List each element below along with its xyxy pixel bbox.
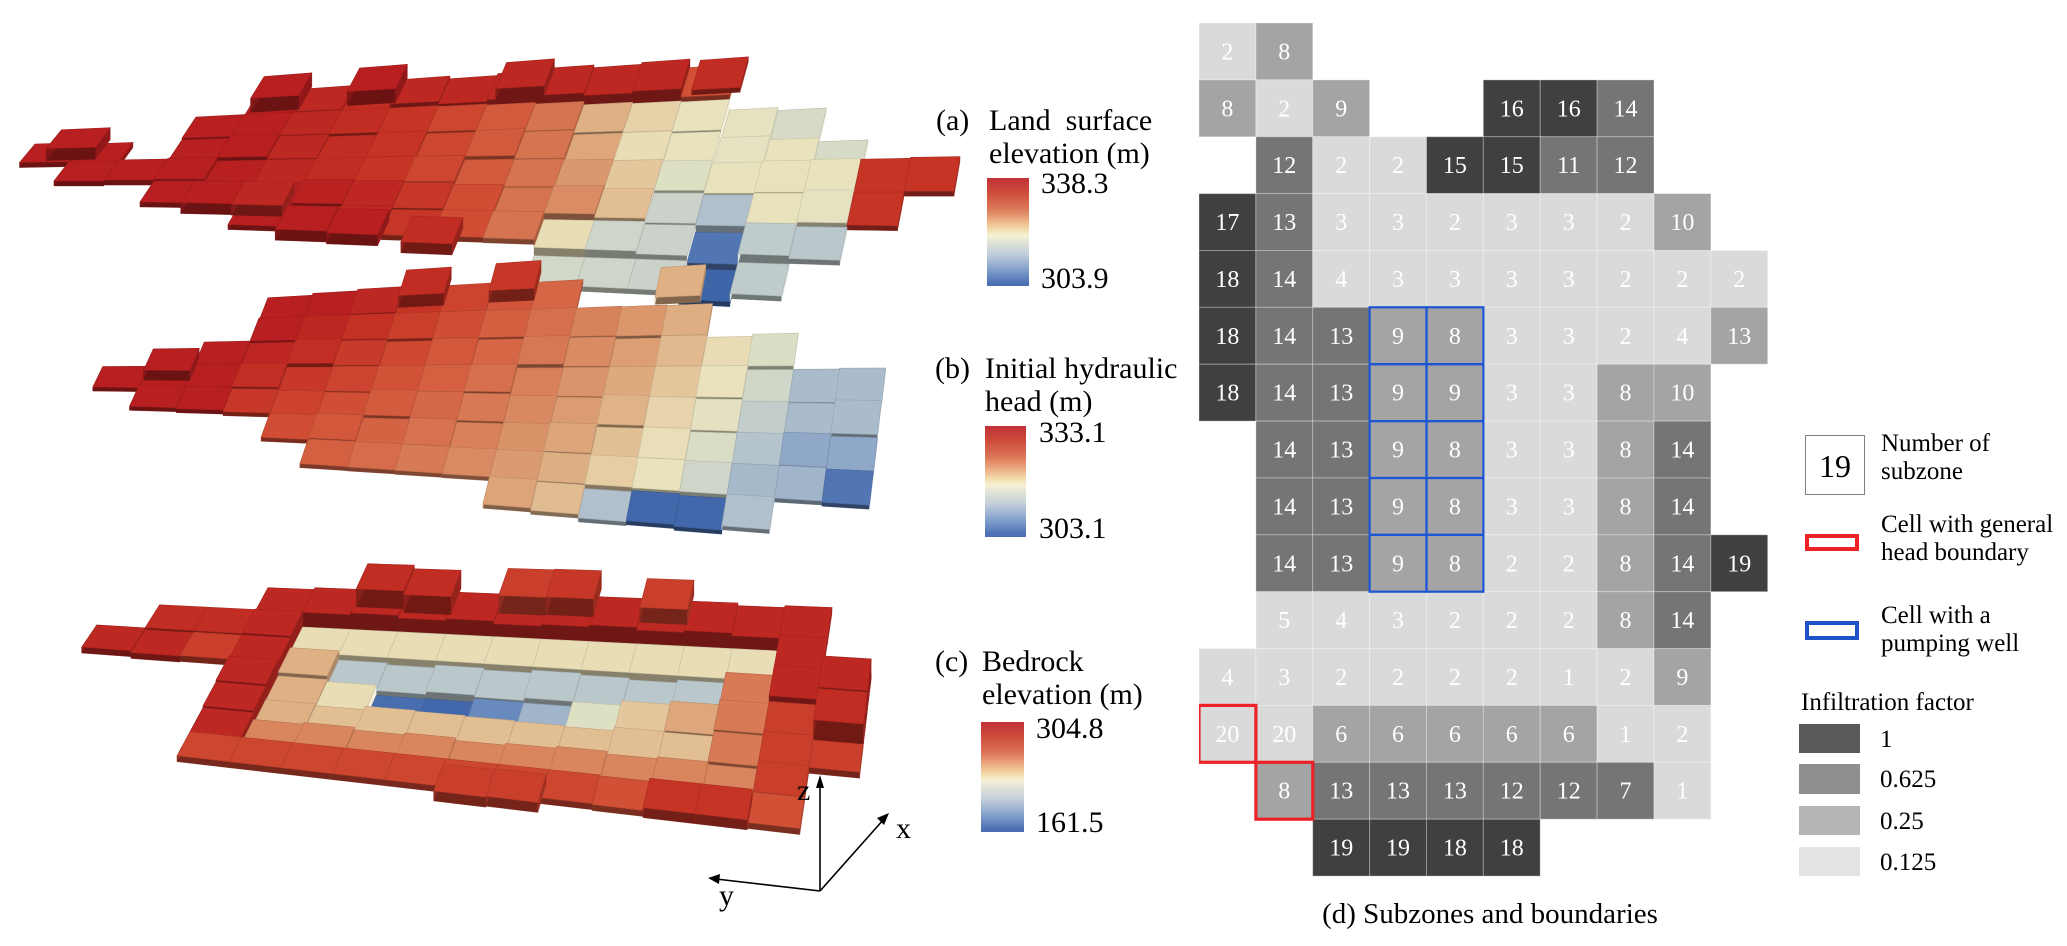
svg-text:13: 13 [1727,324,1751,350]
svg-text:2: 2 [1676,267,1688,293]
svg-text:13: 13 [1329,438,1353,464]
svg-text:3: 3 [1392,608,1404,634]
svg-text:2: 2 [1506,608,1518,634]
svg-text:2: 2 [1676,722,1688,748]
svg-text:3: 3 [1506,494,1518,520]
svg-text:y: y [719,879,734,912]
svg-text:2: 2 [1620,665,1632,691]
svg-text:10: 10 [1670,210,1694,236]
svg-text:3: 3 [1506,210,1518,236]
svg-text:9: 9 [1392,324,1404,350]
svg-text:3: 3 [1278,665,1290,691]
svg-text:12: 12 [1272,153,1296,179]
svg-text:18: 18 [1500,836,1524,862]
svg-text:14: 14 [1272,381,1296,407]
svg-text:5: 5 [1278,608,1290,634]
svg-text:13: 13 [1329,551,1353,577]
svg-text:4: 4 [1335,267,1347,293]
svg-text:3: 3 [1392,210,1404,236]
svg-text:3: 3 [1563,210,1575,236]
svg-text:2: 2 [1449,608,1461,634]
svg-text:2: 2 [1506,551,1518,577]
svg-text:9: 9 [1449,381,1461,407]
svg-text:19: 19 [1386,836,1410,862]
svg-text:2: 2 [1392,153,1404,179]
svg-text:8: 8 [1449,438,1461,464]
svg-text:2: 2 [1392,665,1404,691]
svg-text:17: 17 [1215,210,1239,236]
svg-text:16: 16 [1557,96,1581,122]
svg-text:8: 8 [1620,608,1632,634]
svg-text:6: 6 [1506,722,1518,748]
svg-text:6: 6 [1563,722,1575,748]
svg-text:19: 19 [1329,836,1353,862]
svg-text:6: 6 [1392,722,1404,748]
svg-text:14: 14 [1272,438,1296,464]
svg-text:2: 2 [1506,665,1518,691]
svg-text:2: 2 [1620,324,1632,350]
svg-text:13: 13 [1329,779,1353,805]
svg-text:19: 19 [1727,551,1751,577]
svg-text:14: 14 [1272,551,1296,577]
svg-text:14: 14 [1670,494,1694,520]
svg-text:2: 2 [1620,210,1632,236]
svg-text:13: 13 [1329,324,1353,350]
svg-text:14: 14 [1272,267,1296,293]
svg-text:3: 3 [1392,267,1404,293]
svg-text:8: 8 [1620,551,1632,577]
svg-text:2: 2 [1620,267,1632,293]
svg-text:8: 8 [1449,324,1461,350]
svg-text:3: 3 [1563,381,1575,407]
svg-text:3: 3 [1563,324,1575,350]
svg-text:8: 8 [1620,381,1632,407]
svg-text:6: 6 [1449,722,1461,748]
svg-text:8: 8 [1449,494,1461,520]
svg-text:8: 8 [1449,551,1461,577]
svg-text:9: 9 [1392,551,1404,577]
svg-text:9: 9 [1392,438,1404,464]
svg-text:2: 2 [1563,608,1575,634]
svg-text:2: 2 [1449,665,1461,691]
svg-text:9: 9 [1392,381,1404,407]
svg-text:2: 2 [1335,153,1347,179]
svg-text:2: 2 [1563,551,1575,577]
svg-text:x: x [896,812,911,845]
svg-text:8: 8 [1620,438,1632,464]
svg-text:18: 18 [1215,324,1239,350]
svg-text:3: 3 [1563,267,1575,293]
svg-text:2: 2 [1278,96,1290,122]
svg-text:18: 18 [1215,267,1239,293]
svg-text:10: 10 [1670,381,1694,407]
svg-text:11: 11 [1557,153,1580,179]
svg-text:6: 6 [1335,722,1347,748]
svg-text:13: 13 [1443,779,1467,805]
svg-text:18: 18 [1443,836,1467,862]
svg-text:16: 16 [1500,96,1524,122]
svg-text:3: 3 [1563,438,1575,464]
svg-text:12: 12 [1614,153,1638,179]
svg-text:13: 13 [1329,381,1353,407]
svg-text:15: 15 [1443,153,1467,179]
svg-text:13: 13 [1272,210,1296,236]
svg-text:13: 13 [1386,779,1410,805]
svg-text:14: 14 [1670,608,1694,634]
svg-text:14: 14 [1614,96,1638,122]
svg-text:3: 3 [1506,438,1518,464]
svg-text:8: 8 [1221,96,1233,122]
svg-text:13: 13 [1329,494,1353,520]
svg-text:14: 14 [1670,438,1694,464]
svg-text:14: 14 [1670,551,1694,577]
svg-text:14: 14 [1272,494,1296,520]
svg-text:15: 15 [1500,153,1524,179]
svg-text:3: 3 [1449,267,1461,293]
svg-text:3: 3 [1506,324,1518,350]
svg-text:12: 12 [1500,779,1524,805]
svg-text:3: 3 [1563,494,1575,520]
svg-text:8: 8 [1278,39,1290,65]
svg-text:1: 1 [1563,665,1575,691]
svg-text:14: 14 [1272,324,1296,350]
svg-text:4: 4 [1221,665,1233,691]
svg-text:4: 4 [1335,608,1347,634]
svg-text:3: 3 [1335,210,1347,236]
svg-text:2: 2 [1221,39,1233,65]
svg-text:2: 2 [1449,210,1461,236]
svg-text:12: 12 [1557,779,1581,805]
svg-text:4: 4 [1676,324,1688,350]
svg-text:20: 20 [1272,722,1296,748]
svg-text:9: 9 [1335,96,1347,122]
svg-text:18: 18 [1215,381,1239,407]
svg-text:8: 8 [1278,779,1290,805]
svg-text:2: 2 [1733,267,1745,293]
svg-text:z: z [797,774,810,807]
svg-text:8: 8 [1620,494,1632,520]
svg-text:9: 9 [1676,665,1688,691]
svg-text:9: 9 [1392,494,1404,520]
svg-text:7: 7 [1620,779,1632,805]
svg-text:1: 1 [1620,722,1632,748]
svg-text:2: 2 [1335,665,1347,691]
svg-text:20: 20 [1215,722,1239,748]
svg-text:1: 1 [1676,779,1688,805]
svg-text:3: 3 [1506,381,1518,407]
svg-text:3: 3 [1506,267,1518,293]
